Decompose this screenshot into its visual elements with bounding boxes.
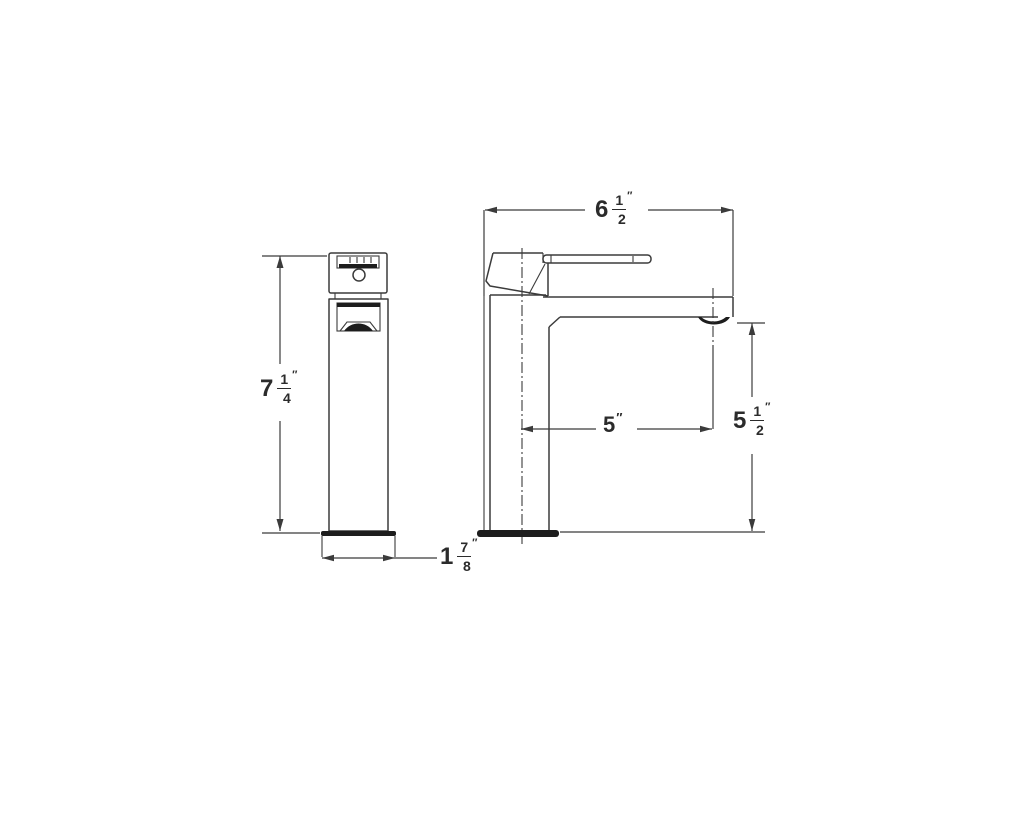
front-lever	[337, 256, 379, 268]
inch-mark: ″	[292, 369, 297, 382]
front-body	[329, 299, 388, 531]
dimension-label-base-width: 1 7″ 8	[438, 539, 478, 574]
technical-drawing-canvas: 7 1″ 4 1 7″ 8 6 1″ 2 5 ″ 5 1″ 2	[0, 0, 1024, 827]
front-spout-recess	[337, 303, 380, 331]
side-spout-aerator	[698, 317, 730, 325]
front-base-width-dimension	[322, 555, 437, 562]
dimension-value: 6	[595, 198, 608, 222]
dimension-value: 1	[440, 545, 453, 569]
front-handle-screw	[353, 269, 365, 281]
faucet-side-view	[477, 248, 733, 547]
dimension-label-overall-depth: 6 1″ 2	[593, 192, 633, 227]
inch-mark: ″	[627, 190, 632, 203]
dimension-label-spout-height: 5 1″ 2	[731, 403, 771, 438]
inch-mark: ″	[472, 537, 477, 550]
dimension-value: 5	[603, 414, 615, 436]
dimension-value: 5	[733, 409, 746, 433]
inch-mark: ″	[616, 411, 622, 424]
dimension-value: 7	[260, 377, 273, 401]
front-handle-block	[329, 253, 387, 293]
side-spout	[543, 288, 733, 345]
side-base-flange	[477, 530, 559, 537]
faucet-drawing	[0, 0, 1024, 827]
side-handle-block	[486, 253, 548, 296]
inch-mark: ″	[765, 401, 770, 414]
dimension-label-spout-reach: 5 ″	[601, 414, 623, 436]
side-lever	[543, 253, 651, 263]
faucet-front-view	[321, 253, 396, 557]
front-spout-opening	[344, 324, 373, 332]
front-base-plate	[321, 531, 396, 557]
side-body	[484, 295, 549, 530]
dimension-label-height: 7 1″ 4	[258, 371, 298, 406]
